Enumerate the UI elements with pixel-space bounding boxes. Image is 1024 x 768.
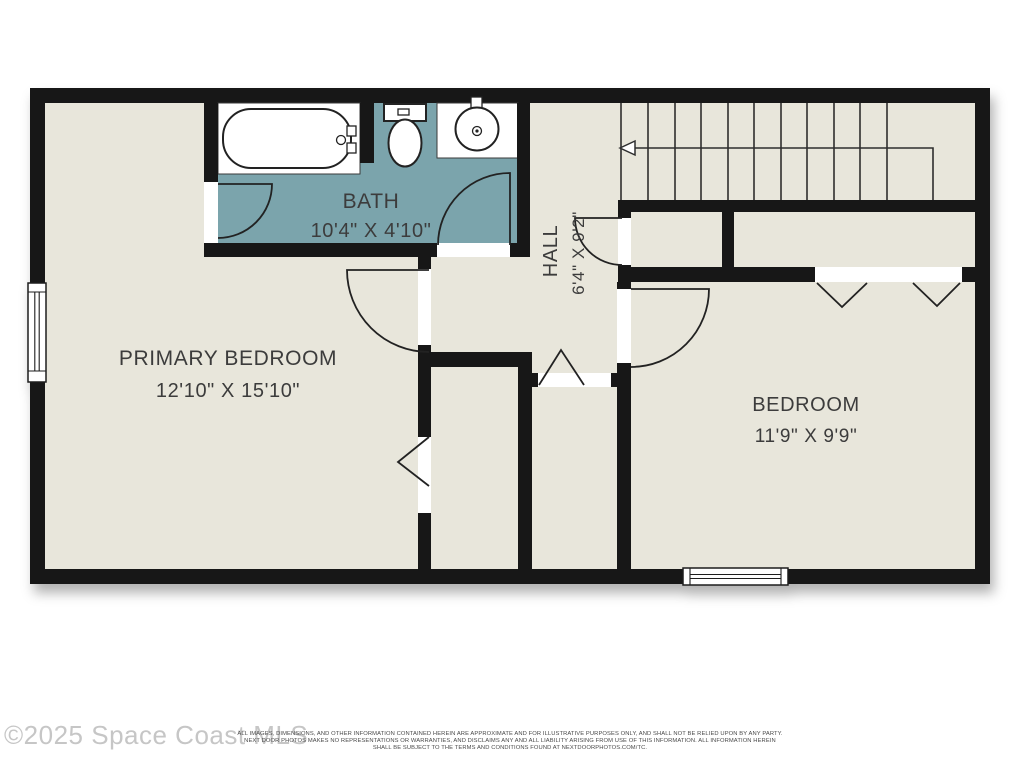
door-gap bbox=[437, 243, 510, 257]
left-window bbox=[28, 283, 46, 382]
wall-segment bbox=[204, 243, 437, 257]
wall-segment bbox=[518, 352, 532, 569]
wall-segment bbox=[418, 257, 431, 269]
wall-segment bbox=[617, 282, 631, 289]
wall-segment bbox=[532, 373, 538, 387]
wall-segment bbox=[204, 103, 218, 182]
wall-segment bbox=[618, 267, 815, 282]
floor-plan-page: PRIMARY BEDROOM 12'10" X 15'10" BATH 10'… bbox=[0, 0, 1024, 768]
door-gap bbox=[204, 182, 218, 243]
bathtub-faucet-icon bbox=[337, 136, 346, 145]
door-gap bbox=[418, 269, 431, 345]
hall-dimensions: 6'4" X 9'2" bbox=[569, 211, 588, 295]
wall-segment bbox=[722, 212, 734, 267]
bathtub-fitting bbox=[347, 126, 356, 136]
toilet-bowl bbox=[389, 120, 422, 167]
door-gap bbox=[815, 267, 962, 282]
floor-plan-canvas: PRIMARY BEDROOM 12'10" X 15'10" BATH 10'… bbox=[0, 0, 1024, 768]
hall-label: HALL bbox=[540, 225, 562, 277]
floor-plan: PRIMARY BEDROOM 12'10" X 15'10" BATH 10'… bbox=[28, 88, 990, 585]
wall-segment bbox=[517, 103, 530, 257]
wall-segment bbox=[611, 373, 618, 387]
bathtub bbox=[223, 109, 356, 168]
disclaimer-line: ALL IMAGES, DIMENSIONS, AND OTHER INFORM… bbox=[237, 731, 782, 737]
bath-label: BATH bbox=[343, 190, 400, 213]
door-gap bbox=[418, 437, 431, 513]
disclaimer-line: SHALL BE SUBJECT TO THE TERMS AND CONDIT… bbox=[373, 745, 647, 751]
disclaimer: ALL IMAGES, DIMENSIONS, AND OTHER INFORM… bbox=[237, 731, 782, 751]
wall-segment bbox=[418, 345, 431, 437]
door-gap bbox=[617, 289, 631, 363]
wall-segment bbox=[962, 267, 975, 282]
bathtub-fitting bbox=[347, 143, 356, 153]
window-frame bbox=[28, 283, 46, 382]
wall-segment bbox=[360, 103, 374, 163]
primary-bedroom-dimensions: 12'10" X 15'10" bbox=[156, 380, 300, 402]
bedroom-window bbox=[683, 568, 788, 585]
wall-segment bbox=[418, 513, 431, 569]
window-frame bbox=[683, 568, 788, 585]
wall-segment bbox=[618, 200, 975, 212]
disclaimer-line: NEXT DOOR PHOTOS MAKES NO REPRESENTATION… bbox=[244, 738, 776, 744]
primary-bedroom-label: PRIMARY BEDROOM bbox=[119, 347, 337, 370]
sink-drain-dot bbox=[475, 129, 478, 132]
bedroom-dimensions: 11'9" X 9'9" bbox=[755, 426, 858, 447]
door-gap bbox=[538, 373, 611, 387]
toilet-flush-button bbox=[398, 109, 409, 115]
wall-segment bbox=[418, 352, 532, 367]
bedroom-label: BEDROOM bbox=[752, 394, 860, 416]
door-gap bbox=[618, 218, 631, 265]
bath-dimensions: 10'4" X 4'10" bbox=[311, 220, 432, 242]
wall-segment bbox=[617, 363, 631, 569]
bathtub-basin bbox=[223, 109, 351, 168]
